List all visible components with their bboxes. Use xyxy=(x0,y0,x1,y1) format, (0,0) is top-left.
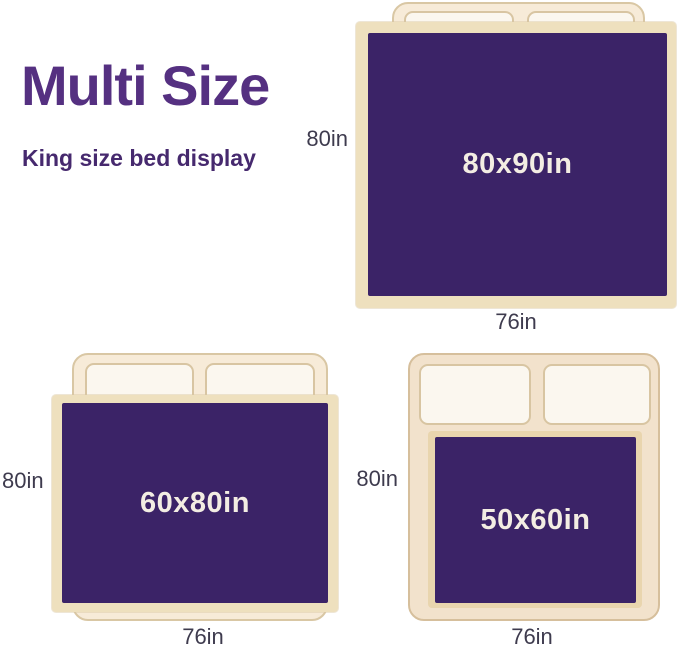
bottom-dimension-label: 76in xyxy=(153,626,253,648)
page-title: Multi Size xyxy=(21,58,269,114)
side-dimension-label: 80in xyxy=(288,128,348,150)
pillow-right xyxy=(543,364,651,425)
blanket-surface: 60x80in xyxy=(62,403,328,603)
blanket-80x90: 80x90in xyxy=(356,22,676,308)
page-subtitle: King size bed display xyxy=(22,146,256,171)
side-dimension-label: 80in xyxy=(352,468,398,490)
blanket-size-label: 80x90in xyxy=(463,148,573,181)
blanket-50x60: 50x60in xyxy=(428,431,642,608)
bottom-dimension-label: 76in xyxy=(482,626,582,648)
blanket-size-label: 60x80in xyxy=(140,487,250,520)
pillow-left xyxy=(419,364,531,425)
blanket-60x80: 60x80in xyxy=(52,395,338,612)
size-chart-canvas: Multi Size King size bed display 80x90in… xyxy=(0,0,679,649)
blanket-size-label: 50x60in xyxy=(481,504,591,537)
bottom-dimension-label: 76in xyxy=(466,311,566,333)
blanket-surface: 80x90in xyxy=(368,33,667,296)
blanket-surface: 50x60in xyxy=(435,437,636,603)
side-dimension-label: 80in xyxy=(2,470,44,492)
